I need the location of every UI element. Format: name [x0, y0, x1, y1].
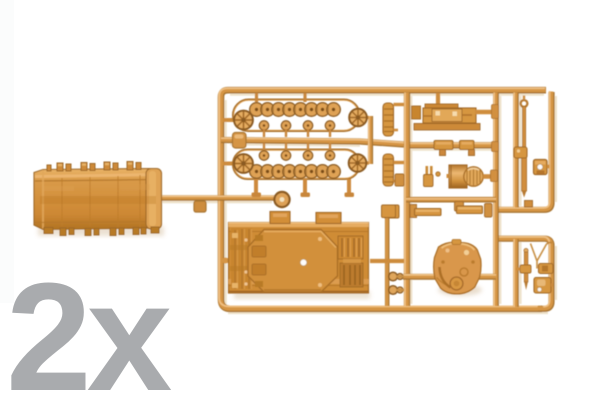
svg-text:2x: 2x	[6, 251, 172, 400]
